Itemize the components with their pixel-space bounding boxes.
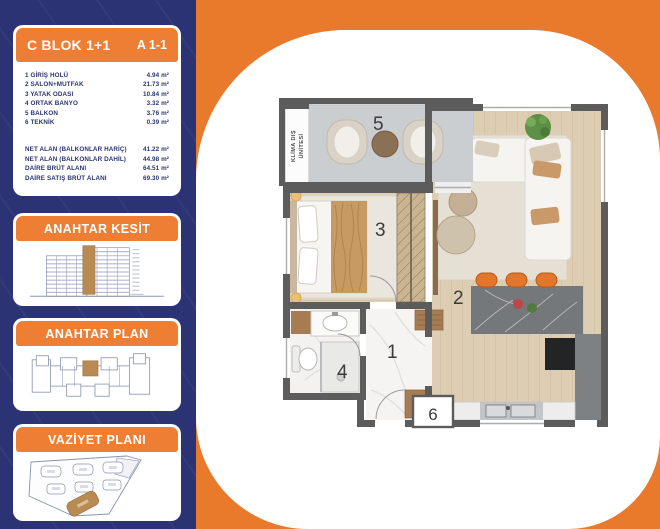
kitchen-sink-counter [451, 402, 575, 420]
unit-header-band: C BLOK 1+1 A 1-1 [16, 28, 178, 62]
room-number-bathroom: 4 [337, 362, 348, 383]
wardrobe [397, 193, 425, 302]
vanity-cabinet [291, 311, 311, 334]
balcony: KLİMA DIŞ ÜNİTESİ 5 [285, 101, 473, 184]
room-row: 6 TEKNİK0.39 m² [25, 118, 169, 127]
ac-unit-area [285, 102, 309, 184]
media-console [433, 200, 438, 295]
bathroom-sink [311, 311, 359, 336]
key-section-title: ANAHTAR KESİT [16, 216, 178, 241]
total-row: NET ALAN (BALKONLAR HARİÇ)41.22 m² [25, 145, 169, 154]
balcony-chair [403, 120, 443, 164]
room-number-balcony: 5 [373, 114, 384, 135]
key-plan-diagram [16, 346, 178, 408]
room-number-salon: 2 [453, 288, 464, 309]
site-plan-title: VAZİYET PLANI [16, 427, 178, 452]
bathroom: 4 [290, 309, 360, 393]
site-plan-card: VAZİYET PLANI [13, 424, 181, 521]
unit-location-highlight [83, 361, 98, 376]
room-list: 1 GİRİŞ HOLÜ4.94 m² 2 SALON+MUTFAK21.73 … [25, 71, 169, 128]
unit-info-card: C BLOK 1+1 A 1-1 1 GİRİŞ HOLÜ4.94 m² 2 S… [13, 25, 181, 196]
floor-plan: 2 3 [275, 90, 615, 447]
area-totals: NET ALAN (BALKONLAR HARİÇ)41.22 m² NET A… [25, 145, 169, 183]
kitchen-counter-right [575, 334, 601, 420]
toilet [292, 346, 317, 372]
room-row: 1 GİRİŞ HOLÜ4.94 m² [25, 71, 169, 80]
room-number-bedroom: 3 [375, 220, 386, 241]
room-row: 4 ORTAK BANYO3.32 m² [25, 99, 169, 108]
total-row: DAİRE SATIŞ BRÜT ALANI69.30 m² [25, 174, 169, 183]
bar-stools [476, 273, 557, 287]
bed [290, 201, 367, 293]
kitchen-island [471, 286, 583, 334]
svg-text:ÜNİTESİ: ÜNİTESİ [298, 134, 305, 159]
block-title: C BLOK 1+1 [27, 37, 110, 53]
technic-room: 6 [413, 396, 453, 427]
key-plan-card: ANAHTAR PLAN [13, 318, 181, 411]
total-row: DAİRE BRÜT ALANI64.51 m² [25, 164, 169, 173]
room-number-technic: 6 [428, 405, 437, 424]
room-row: 5 BALKON3.76 m² [25, 109, 169, 118]
floor-plan-drawing: 2 3 [275, 90, 615, 447]
key-section-diagram [16, 241, 178, 303]
unit-code: A 1-1 [137, 38, 167, 52]
room-row: 3 YATAK ODASI10.84 m² [25, 90, 169, 99]
unit-column-highlight [83, 246, 95, 295]
site-plan-diagram [16, 452, 178, 518]
coffee-table [437, 216, 475, 254]
plant-icon [525, 114, 551, 140]
room-row: 2 SALON+MUTFAK21.73 m² [25, 80, 169, 89]
key-plan-title: ANAHTAR PLAN [16, 321, 178, 346]
cooktop [545, 338, 575, 370]
room-number-hall: 1 [387, 342, 398, 363]
total-row: NET ALAN (BALKONLAR DAHİL)44.98 m² [25, 155, 169, 164]
key-section-card: ANAHTAR KESİT [13, 213, 181, 306]
ac-unit-label: KLİMA DIŞ [290, 130, 297, 162]
sidebar: C BLOK 1+1 A 1-1 1 GİRİŞ HOLÜ4.94 m² 2 S… [0, 0, 196, 529]
bedroom: 3 [290, 191, 425, 303]
nightstand-lamp [291, 293, 301, 303]
balcony-chair [327, 120, 367, 164]
